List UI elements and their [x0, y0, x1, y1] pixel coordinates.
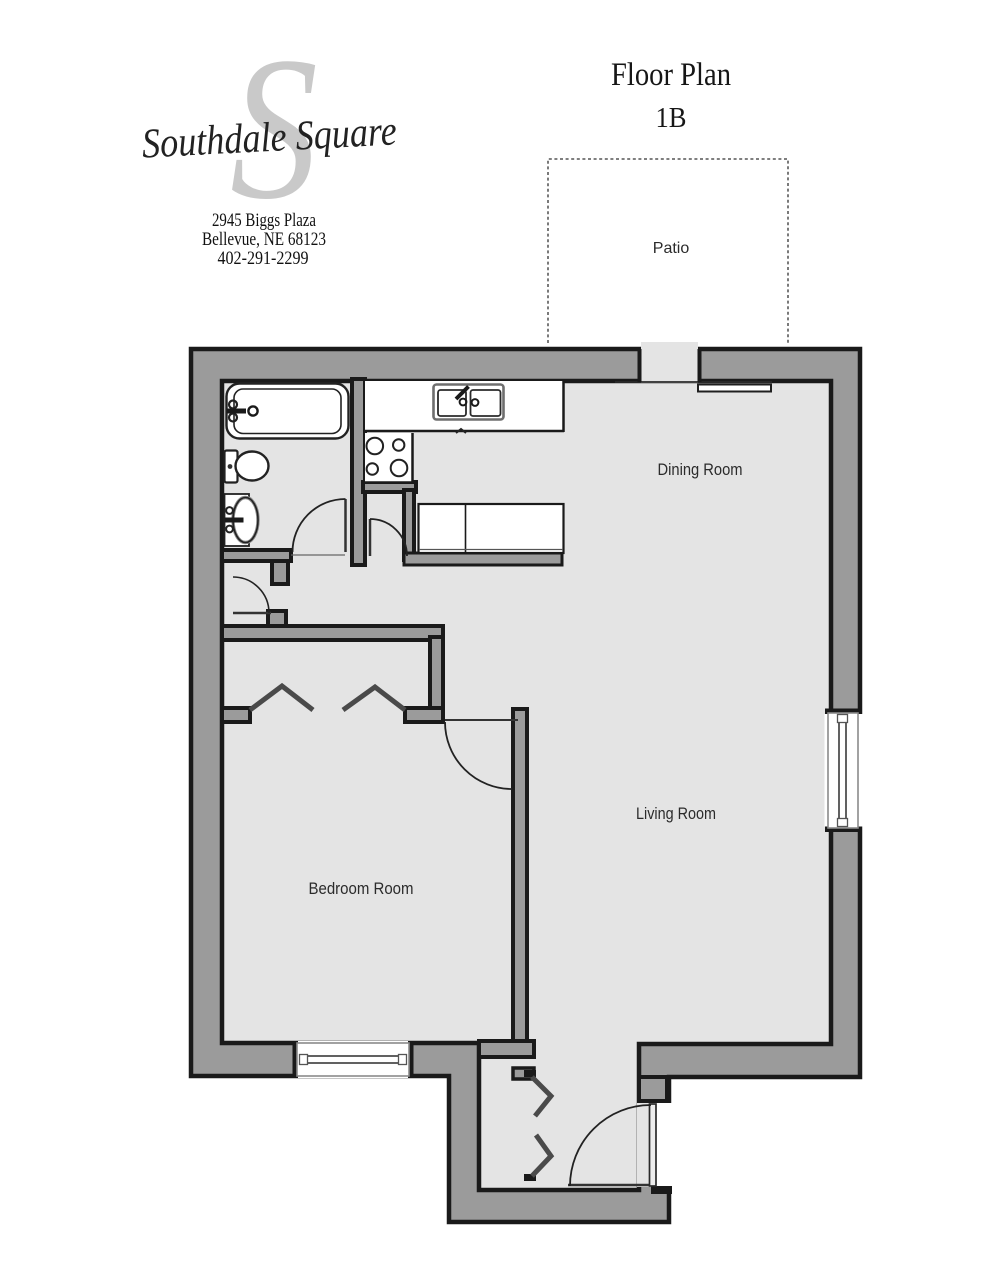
svg-text:1B: 1B	[656, 103, 687, 134]
svg-text:Living Room: Living Room	[636, 804, 716, 823]
svg-text:402-291-2299: 402-291-2299	[218, 248, 309, 269]
svg-text:2945 Biggs Plaza: 2945 Biggs Plaza	[212, 210, 316, 231]
svg-text:Dining Room: Dining Room	[658, 460, 743, 479]
svg-text:Bellevue, NE 68123: Bellevue, NE 68123	[202, 229, 326, 250]
svg-text:Bedroom Room: Bedroom Room	[309, 879, 414, 898]
svg-text:Patio: Patio	[653, 240, 690, 257]
svg-text:Floor Plan: Floor Plan	[611, 57, 731, 93]
